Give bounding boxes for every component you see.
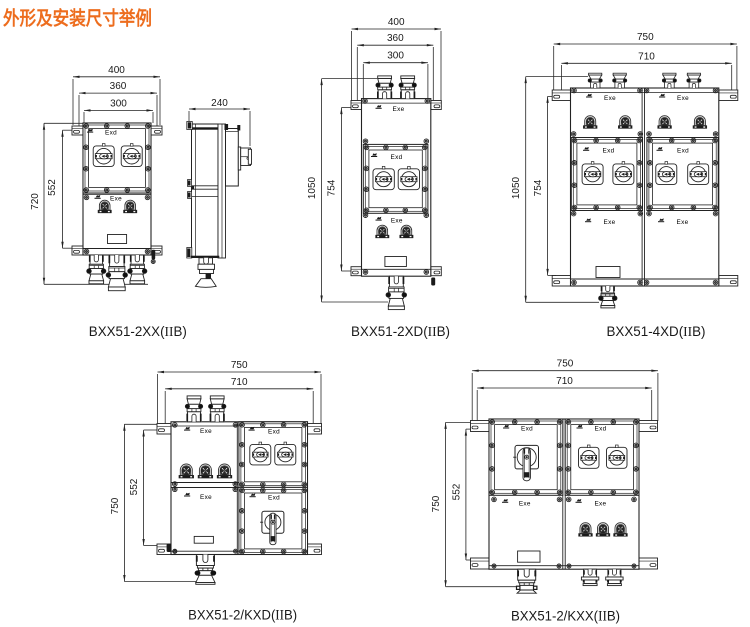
svg-text:750: 750 (231, 360, 248, 371)
svg-text:Exd: Exd (677, 148, 689, 155)
svg-text:720: 720 (30, 193, 41, 210)
svg-text:240: 240 (211, 98, 228, 109)
svg-text:754: 754 (327, 179, 338, 196)
svg-text:Exe: Exe (677, 95, 689, 102)
svg-text:552: 552 (452, 483, 463, 500)
svg-text:552: 552 (47, 179, 58, 196)
svg-text:BXX51-2/KXX(IIB): BXX51-2/KXX(IIB) (511, 609, 620, 625)
svg-text:Exe: Exe (393, 106, 405, 113)
svg-text:Exd: Exd (603, 148, 615, 155)
svg-text:750: 750 (557, 359, 574, 370)
svg-text:BXX51-2/KXD(IIB): BXX51-2/KXD(IIB) (188, 608, 297, 624)
svg-text:400: 400 (108, 65, 125, 76)
svg-text:1050: 1050 (307, 176, 318, 199)
svg-text:360: 360 (387, 33, 404, 44)
svg-text:Exd: Exd (391, 154, 403, 161)
svg-text:BXX51-2XX(IIB): BXX51-2XX(IIB) (89, 324, 187, 339)
svg-text:Exe: Exe (200, 428, 212, 435)
svg-text:Exe: Exe (110, 196, 122, 203)
svg-text:外形及安装尺寸举例: 外形及安装尺寸举例 (3, 7, 152, 30)
svg-text:400: 400 (388, 17, 405, 28)
svg-text:Exe: Exe (519, 500, 531, 507)
svg-text:300: 300 (387, 51, 404, 62)
svg-text:300: 300 (110, 98, 127, 109)
svg-text:Exd: Exd (268, 429, 280, 436)
svg-text:Exe: Exe (604, 219, 616, 226)
svg-text:552: 552 (129, 478, 140, 495)
svg-text:Exd: Exd (268, 495, 280, 502)
svg-text:Exd: Exd (595, 426, 607, 433)
svg-text:Exe: Exe (594, 500, 606, 507)
svg-text:Exe: Exe (200, 494, 212, 501)
svg-text:710: 710 (556, 376, 573, 387)
svg-text:Exe: Exe (391, 217, 403, 224)
svg-text:754: 754 (533, 179, 544, 196)
svg-text:710: 710 (638, 51, 655, 62)
svg-text:750: 750 (431, 495, 442, 512)
svg-text:Exd: Exd (105, 130, 117, 137)
svg-text:Exe: Exe (604, 95, 616, 102)
svg-text:1050: 1050 (511, 176, 522, 199)
svg-text:750: 750 (110, 497, 121, 514)
svg-text:Exd: Exd (521, 426, 533, 433)
svg-text:710: 710 (231, 377, 248, 388)
svg-text:BXX51-2XD(IIB): BXX51-2XD(IIB) (351, 324, 450, 339)
svg-text:Exe: Exe (677, 219, 689, 226)
svg-text:750: 750 (637, 32, 654, 43)
svg-text:360: 360 (110, 81, 127, 92)
svg-text:BXX51-4XD(IIB): BXX51-4XD(IIB) (607, 324, 706, 339)
